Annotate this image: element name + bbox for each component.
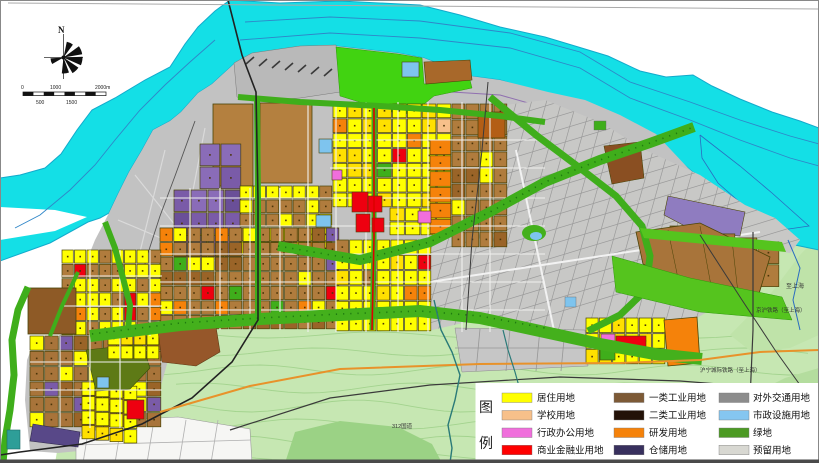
svg-text:对外交通用地: 对外交通用地	[753, 392, 811, 404]
svg-text:2000m: 2000m	[95, 85, 110, 91]
svg-text:500: 500	[36, 100, 45, 106]
svg-text:至上海: 至上海	[786, 282, 804, 290]
svg-text:图: 图	[479, 399, 493, 415]
svg-text:预留用地: 预留用地	[753, 445, 792, 457]
svg-text:行政办公用地: 行政办公用地	[537, 427, 595, 439]
svg-text:312国道: 312国道	[392, 422, 413, 430]
svg-text:N: N	[58, 25, 65, 35]
svg-text:市政设施用地: 市政设施用地	[753, 410, 811, 422]
svg-text:1000: 1000	[50, 85, 61, 91]
svg-text:例: 例	[479, 435, 493, 451]
svg-text:一类工业用地: 一类工业用地	[649, 392, 707, 404]
svg-text:二类工业用地: 二类工业用地	[649, 410, 707, 422]
svg-text:0: 0	[21, 85, 24, 91]
svg-text:沪宁城际铁路（至上海）: 沪宁城际铁路（至上海）	[700, 366, 761, 374]
svg-text:研发用地: 研发用地	[649, 427, 688, 439]
svg-text:商业金融业用地: 商业金融业用地	[537, 445, 604, 457]
svg-text:仓储用地: 仓储用地	[649, 445, 688, 457]
svg-text:1500: 1500	[66, 100, 77, 106]
svg-text:居住用地: 居住用地	[537, 392, 576, 404]
svg-text:京沪铁路（至上海）: 京沪铁路（至上海）	[756, 306, 806, 314]
svg-text:学校用地: 学校用地	[537, 410, 576, 422]
svg-text:绿地: 绿地	[753, 427, 773, 439]
